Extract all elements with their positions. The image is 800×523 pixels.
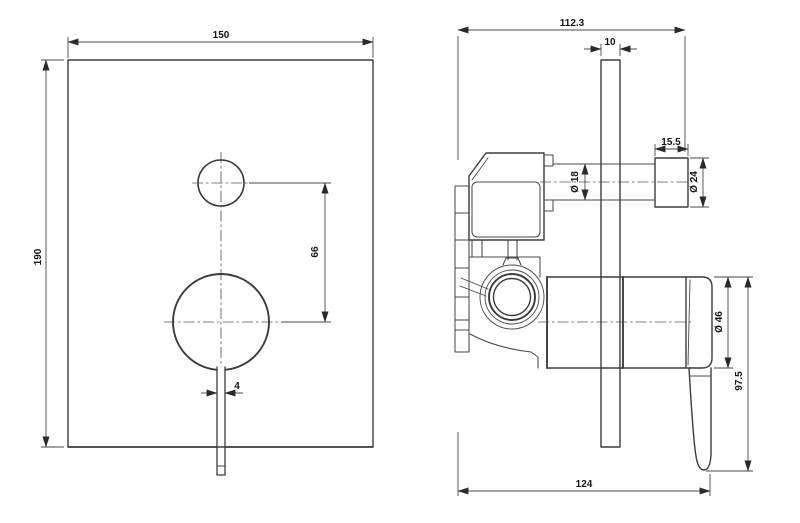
dim-knob-length: 15.5 xyxy=(655,137,688,156)
handle-base-cylinder-side xyxy=(547,277,686,368)
label-plate-width: 150 xyxy=(213,30,230,41)
diverter-knob-side xyxy=(655,158,688,207)
handle-side xyxy=(686,277,712,470)
label-plate-height: 190 xyxy=(33,248,44,265)
dim-plate-thickness: 10 xyxy=(584,37,637,56)
label-lever-width: 4 xyxy=(234,381,240,392)
dim-handle-diameter: Ø 46 xyxy=(714,277,733,368)
dim-total-depth: 124 xyxy=(458,432,710,496)
valve-body-side xyxy=(460,240,547,368)
label-knob-length: 15.5 xyxy=(661,137,681,148)
dim-knob-diameter: Ø 24 xyxy=(689,158,709,207)
dim-hole-spacing: 66 xyxy=(249,183,331,322)
mounting-bracket-side xyxy=(455,186,469,352)
handle-lever-front xyxy=(217,367,225,475)
dim-plate-height: 190 xyxy=(33,60,64,447)
label-handle-length: 97.5 xyxy=(734,371,745,391)
diverter-assembly-side xyxy=(469,153,688,240)
label-overall-depth: 112.3 xyxy=(560,18,585,29)
label-knob-diameter: Ø 24 xyxy=(689,171,700,193)
front-view: 150 190 66 4 xyxy=(33,30,373,475)
label-total-depth: 124 xyxy=(576,479,593,490)
dim-plate-width: 150 xyxy=(68,30,373,58)
centerlines-front xyxy=(164,152,281,374)
side-view: 112.3 10 15.5 Ø 18 Ø 24 xyxy=(455,18,753,496)
dim-overall-depth: 112.3 xyxy=(458,18,685,160)
wall-plate-side xyxy=(601,60,620,447)
label-hole-spacing: 66 xyxy=(310,246,321,258)
handle-lever-side xyxy=(689,368,711,470)
label-handle-diameter: Ø 46 xyxy=(714,311,725,333)
drawing-canvas: 150 190 66 4 xyxy=(0,0,800,523)
label-stem-diameter: Ø 18 xyxy=(570,171,581,193)
centerlines-side xyxy=(538,182,698,322)
technical-drawing: 150 190 66 4 xyxy=(0,0,800,523)
dim-handle-length: 97.5 xyxy=(706,277,753,471)
label-plate-thickness: 10 xyxy=(604,37,616,48)
